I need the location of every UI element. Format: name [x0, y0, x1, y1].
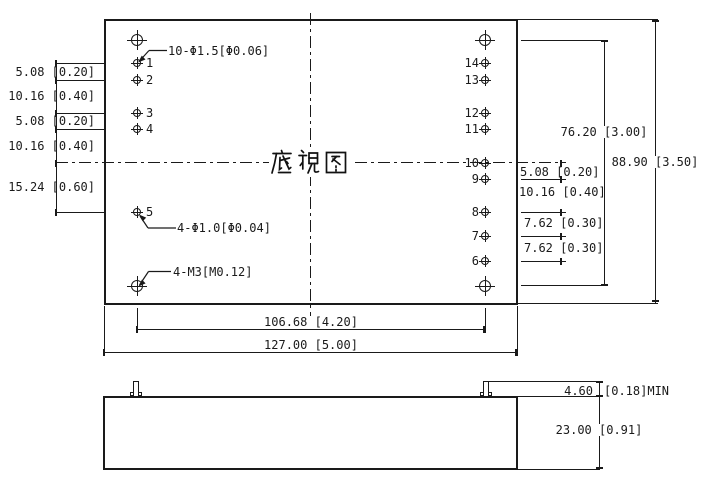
side-view-outline — [103, 396, 518, 470]
dim-line — [137, 329, 485, 330]
pin-icon — [131, 74, 143, 86]
dim-label: 10.16 [0.40] — [519, 186, 606, 198]
pin-icon — [131, 123, 143, 135]
pin-number: 3 — [146, 107, 153, 119]
dim-label: 10.16 [0.40] — [8, 140, 95, 152]
dim-label: 5.08 [0.20] — [8, 66, 95, 78]
dim-label: 88.90 [3.50] — [607, 156, 703, 168]
pin-number: 9 — [453, 173, 479, 185]
dim-extension-line — [56, 212, 104, 213]
dim-label: 4.60 — [545, 385, 593, 397]
pin-number: 5 — [146, 206, 153, 218]
dim-tick — [483, 326, 485, 333]
mounting-hole-icon — [127, 30, 147, 50]
dim-tick — [560, 258, 562, 265]
dim-tick — [560, 209, 562, 216]
dim-label: 7.62 [0.30] — [524, 217, 603, 229]
dim-extension-line — [518, 303, 658, 304]
dim-line — [104, 352, 518, 353]
dim-label: 5.08 [0.20] — [8, 115, 95, 127]
dim-extension-line — [517, 306, 518, 356]
pin-number: 11 — [453, 123, 479, 135]
view-title — [269, 149, 351, 177]
pin-icon — [479, 74, 491, 86]
pin-icon — [479, 206, 491, 218]
pin-icon — [479, 230, 491, 242]
side-view-pin — [483, 381, 489, 396]
dim-label-suffix: [0.18]MIN — [604, 385, 669, 397]
pin-icon — [479, 255, 491, 267]
pin-icon — [479, 123, 491, 135]
dim-label: 10.16 [0.40] — [8, 90, 95, 102]
small-pin-annotation: 4-Φ1.0[Φ0.04] — [177, 222, 271, 234]
pin-number: 12 — [453, 107, 479, 119]
pin-hole-annotation: 10-Φ1.5[Φ0.06] — [168, 45, 269, 57]
dim-label: 5.08 [0.20] — [520, 166, 599, 178]
dim-tick — [136, 326, 138, 333]
view-title-glyphs — [269, 149, 351, 177]
pin-number: 1 — [146, 57, 153, 69]
dim-extension-line — [56, 80, 104, 81]
pin-icon — [131, 107, 143, 119]
screw-annotation: 4-M3[M0.12] — [173, 266, 252, 278]
mounting-hole-icon — [127, 276, 147, 296]
dim-label: 23.00 [0.91] — [551, 424, 647, 436]
dim-extension-line — [521, 285, 607, 286]
dim-extension-line — [489, 381, 600, 382]
pin-number: 8 — [453, 206, 479, 218]
pin-icon — [479, 57, 491, 69]
pin-number: 10 — [453, 157, 479, 169]
dim-tick — [515, 349, 517, 356]
pin-number: 2 — [146, 74, 153, 86]
dim-tick — [596, 467, 603, 469]
pin-icon — [131, 206, 143, 218]
pin-number: 4 — [146, 123, 153, 135]
dim-label: 76.20 [3.00] — [556, 126, 652, 138]
dim-extension-line — [518, 19, 658, 20]
dim-tick — [601, 284, 608, 286]
dim-tick — [652, 300, 659, 302]
pin-icon — [479, 107, 491, 119]
pin-number: 6 — [453, 255, 479, 267]
dim-label: 106.68 [4.20] — [263, 316, 359, 328]
pin-icon — [479, 157, 491, 169]
dim-label: 7.62 [0.30] — [524, 242, 603, 254]
pin-number: 14 — [453, 57, 479, 69]
dim-label: 15.24 [0.60] — [8, 181, 95, 193]
dim-extension-line — [518, 469, 600, 470]
dim-tick — [55, 160, 57, 167]
dim-extension-line — [56, 63, 104, 64]
mounting-hole-icon — [475, 276, 495, 296]
mounting-hole-icon — [475, 30, 495, 50]
dim-tick — [596, 395, 603, 397]
dim-extension-line — [521, 40, 607, 41]
pin-number: 7 — [453, 230, 479, 242]
dim-tick — [103, 349, 105, 356]
dim-tick — [55, 209, 57, 216]
mechanical-drawing: 1 2 3 4 5 14 13 12 11 10 9 8 7 6 5.08 [0… — [0, 0, 714, 491]
dim-tick — [596, 381, 603, 383]
dim-tick — [601, 40, 608, 42]
dim-label: 127.00 [5.00] — [263, 339, 359, 351]
dim-tick — [652, 20, 659, 22]
pin-icon — [131, 57, 143, 69]
dim-tick — [560, 233, 562, 240]
dim-extension-line — [56, 129, 104, 130]
side-view-pin — [133, 381, 139, 396]
pin-icon — [479, 173, 491, 185]
pin-number: 13 — [453, 74, 479, 86]
dim-extension-line — [485, 308, 486, 333]
dim-line — [604, 40, 605, 286]
